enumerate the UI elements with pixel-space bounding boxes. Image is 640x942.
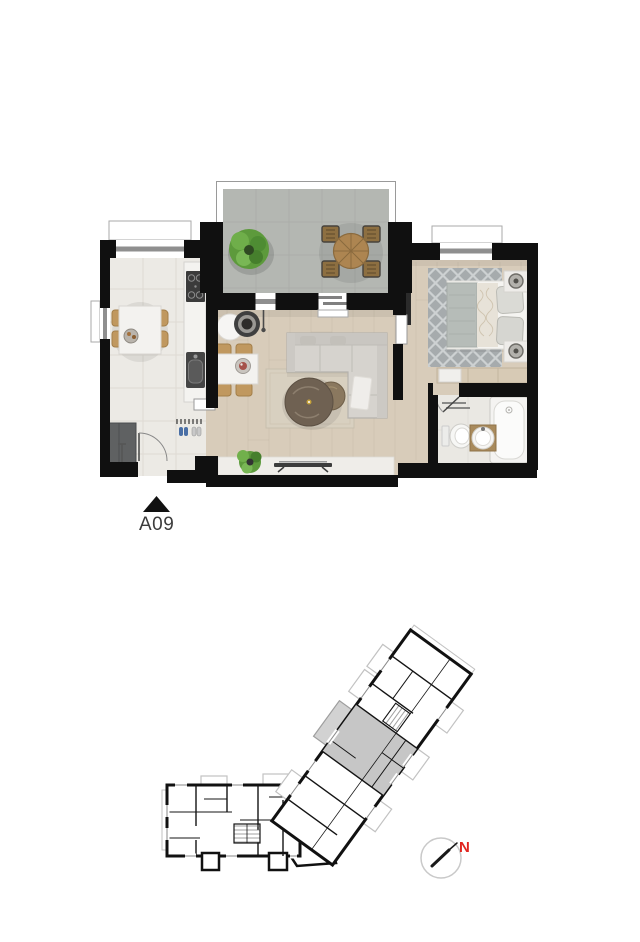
coat-hooks [177, 419, 201, 424]
kitchen-window-sill [109, 221, 191, 240]
kitchen-side-window-sill [91, 301, 100, 342]
bedroom-door-leaf [396, 315, 407, 344]
dining-chair [236, 383, 252, 396]
triangle-up-icon [143, 496, 170, 512]
building-wing-diagonal [259, 616, 487, 874]
wall-shadow [405, 260, 527, 266]
sofa-throw [350, 376, 372, 410]
floor-plan-page: A09 [0, 0, 640, 942]
floor-plan-drawing: A09 [0, 0, 640, 942]
fruit-bowl [124, 329, 138, 343]
toilet [442, 424, 472, 448]
kitchen-sink [186, 352, 205, 388]
living-planter [234, 311, 260, 337]
unit-label: A09 [139, 514, 174, 535]
living-dining-table [212, 354, 258, 384]
duvet [477, 283, 498, 347]
blanket [447, 283, 477, 347]
kitchen-dining-table [119, 306, 161, 354]
bedroom-window-sill [432, 226, 502, 243]
compass: N [421, 838, 470, 878]
washbasin [470, 425, 496, 451]
apartment-plan: A09 [91, 182, 538, 536]
north-label: N [459, 839, 470, 856]
terrace-plant [229, 229, 269, 269]
dresser [439, 369, 461, 382]
site-plan: N [162, 616, 487, 878]
unit-marker: A09 [139, 496, 174, 535]
